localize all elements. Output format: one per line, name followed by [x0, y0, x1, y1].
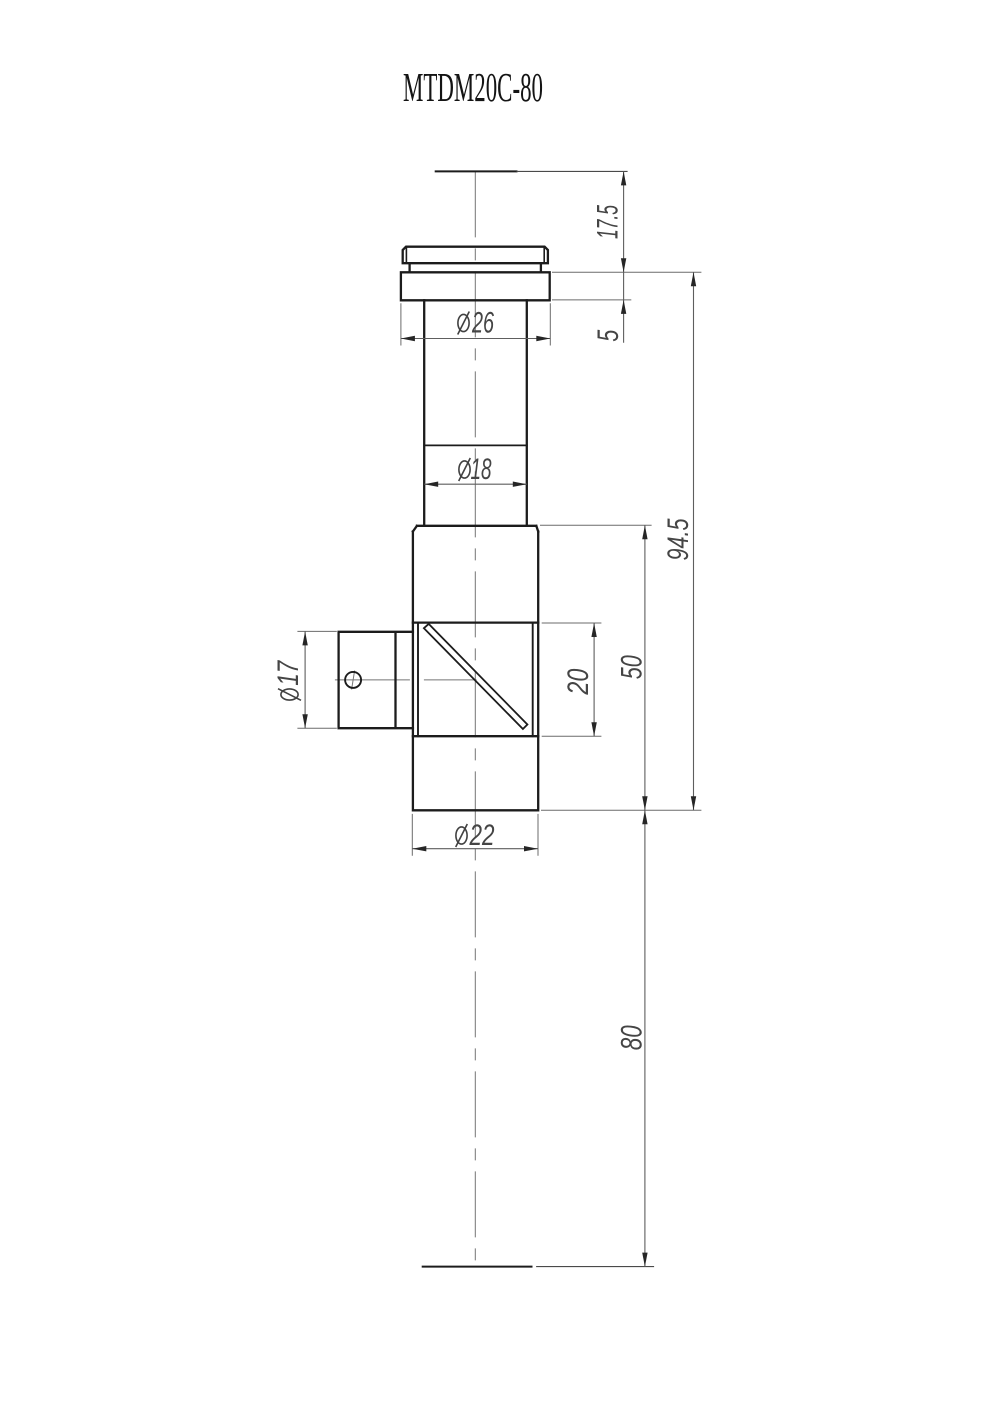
svg-text:50: 50 — [615, 655, 648, 679]
svg-text:17.5: 17.5 — [592, 205, 625, 239]
svg-text:22: 22 — [469, 819, 495, 852]
svg-text:94.5: 94.5 — [662, 518, 695, 560]
svg-text:26: 26 — [471, 307, 494, 340]
svg-text:18: 18 — [471, 453, 492, 486]
svg-text:17: 17 — [272, 660, 305, 686]
svg-text:5: 5 — [592, 330, 625, 342]
svg-text:20: 20 — [562, 668, 595, 695]
svg-text:MTDM20C-80: MTDM20C-80 — [403, 64, 543, 110]
svg-text:80: 80 — [615, 1025, 648, 1050]
